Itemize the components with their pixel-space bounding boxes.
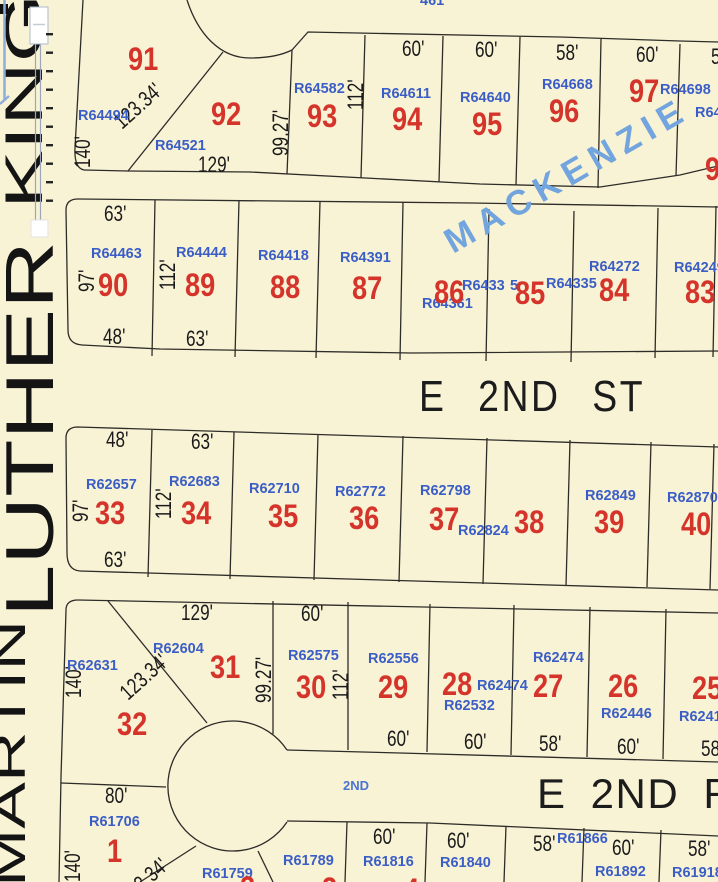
svg-text:R64521: R64521 bbox=[155, 138, 206, 154]
svg-text:R64249: R64249 bbox=[674, 260, 718, 276]
svg-text:92: 92 bbox=[211, 97, 241, 133]
svg-text:129': 129' bbox=[198, 153, 230, 178]
svg-text:87: 87 bbox=[352, 271, 382, 307]
svg-text:R62657: R62657 bbox=[86, 477, 137, 493]
svg-text:140': 140' bbox=[71, 136, 96, 168]
svg-text:63': 63' bbox=[186, 327, 208, 352]
svg-text:86: 86 bbox=[434, 275, 464, 311]
svg-text:30: 30 bbox=[296, 670, 326, 706]
svg-text:R61816: R61816 bbox=[363, 854, 414, 870]
svg-text:112': 112' bbox=[152, 488, 177, 519]
svg-text:R6433: R6433 bbox=[462, 278, 505, 294]
svg-text:LUTHER: LUTHER bbox=[0, 241, 68, 617]
svg-text:R62824: R62824 bbox=[458, 523, 509, 539]
svg-text:R64418: R64418 bbox=[258, 248, 309, 264]
svg-text:90: 90 bbox=[98, 268, 128, 304]
svg-text:R64335: R64335 bbox=[546, 276, 597, 292]
svg-text:1: 1 bbox=[107, 834, 122, 870]
svg-text:33: 33 bbox=[95, 496, 125, 532]
svg-text:29: 29 bbox=[378, 670, 408, 706]
svg-text:R62772: R62772 bbox=[335, 484, 386, 500]
svg-text:58': 58' bbox=[701, 737, 718, 762]
svg-text:R647: R647 bbox=[695, 105, 718, 121]
svg-text:60': 60' bbox=[447, 829, 469, 854]
svg-text:2: 2 bbox=[240, 871, 255, 882]
svg-text:60': 60' bbox=[464, 730, 486, 755]
svg-text:98: 98 bbox=[705, 152, 718, 188]
svg-text:26: 26 bbox=[608, 669, 638, 705]
svg-text:129': 129' bbox=[181, 601, 213, 626]
svg-text:97': 97' bbox=[69, 500, 94, 522]
svg-text:140': 140' bbox=[61, 850, 86, 882]
svg-text:37: 37 bbox=[429, 502, 459, 538]
svg-text:R64444: R64444 bbox=[176, 245, 227, 261]
svg-text:93: 93 bbox=[307, 99, 337, 135]
svg-text:R62683: R62683 bbox=[169, 474, 220, 490]
svg-text:R62798: R62798 bbox=[420, 483, 471, 499]
svg-text:63': 63' bbox=[191, 430, 213, 455]
svg-text:R62474: R62474 bbox=[533, 650, 584, 666]
svg-text:R64463: R64463 bbox=[91, 246, 142, 262]
svg-text:27: 27 bbox=[533, 669, 563, 705]
svg-text:63': 63' bbox=[104, 202, 126, 227]
svg-text:R64668: R64668 bbox=[542, 77, 593, 93]
svg-text:461': 461' bbox=[420, 0, 448, 9]
svg-text:99.27': 99.27' bbox=[252, 657, 277, 703]
svg-text:34: 34 bbox=[181, 496, 212, 532]
svg-text:89: 89 bbox=[185, 268, 215, 304]
svg-text:94: 94 bbox=[392, 102, 423, 138]
svg-text:E 2ND ST: E 2ND ST bbox=[419, 371, 645, 421]
svg-text:60': 60' bbox=[301, 602, 323, 627]
svg-text:99.27': 99.27' bbox=[269, 110, 294, 156]
svg-text:E 2ND R: E 2ND R bbox=[537, 770, 718, 817]
svg-text:84: 84 bbox=[599, 273, 630, 309]
svg-text:R62631: R62631 bbox=[67, 658, 118, 674]
svg-text:97': 97' bbox=[75, 270, 100, 292]
svg-text:R64494: R64494 bbox=[78, 108, 129, 124]
svg-text:48': 48' bbox=[103, 325, 125, 350]
svg-text:83: 83 bbox=[685, 275, 715, 311]
svg-text:63': 63' bbox=[104, 548, 126, 573]
svg-text:R64391: R64391 bbox=[340, 250, 391, 266]
svg-text:R64640: R64640 bbox=[460, 90, 511, 106]
svg-text:60': 60' bbox=[636, 43, 658, 68]
svg-text:80': 80' bbox=[105, 784, 127, 809]
svg-text:95: 95 bbox=[472, 107, 502, 143]
svg-text:60': 60' bbox=[617, 735, 639, 760]
svg-text:R64582: R64582 bbox=[294, 81, 345, 97]
svg-text:48': 48' bbox=[106, 428, 128, 453]
svg-text:R61892: R61892 bbox=[595, 864, 646, 880]
svg-text:R62849: R62849 bbox=[585, 488, 636, 504]
svg-text:112': 112' bbox=[344, 79, 369, 110]
svg-text:25: 25 bbox=[692, 671, 718, 707]
svg-text:MARTIN: MARTIN bbox=[0, 620, 35, 882]
svg-text:4: 4 bbox=[404, 873, 420, 882]
svg-text:112': 112' bbox=[329, 669, 354, 700]
svg-text:60': 60' bbox=[373, 825, 395, 850]
svg-text:58': 58' bbox=[688, 837, 710, 862]
svg-text:R64611: R64611 bbox=[381, 86, 431, 102]
svg-text:58': 58' bbox=[533, 832, 555, 857]
svg-text:R62474: R62474 bbox=[477, 678, 528, 694]
svg-text:28: 28 bbox=[442, 667, 472, 703]
svg-text:R62556: R62556 bbox=[368, 651, 419, 667]
svg-text:58': 58' bbox=[539, 732, 561, 757]
svg-text:38: 38 bbox=[514, 505, 544, 541]
svg-text:R61706: R61706 bbox=[89, 814, 140, 830]
svg-text:R62604: R62604 bbox=[153, 641, 204, 657]
svg-text:40: 40 bbox=[681, 507, 711, 543]
svg-text:R62870: R62870 bbox=[667, 490, 718, 506]
svg-text:35: 35 bbox=[268, 499, 298, 535]
svg-text:39: 39 bbox=[594, 505, 624, 541]
svg-text:60': 60' bbox=[387, 727, 409, 752]
svg-text:2ND: 2ND bbox=[343, 778, 369, 793]
svg-text:88: 88 bbox=[270, 270, 300, 306]
svg-text:96: 96 bbox=[549, 94, 579, 130]
svg-text:R62575: R62575 bbox=[288, 648, 339, 664]
svg-text:58': 58' bbox=[556, 41, 578, 66]
svg-text:32: 32 bbox=[117, 707, 147, 743]
svg-text:R61789: R61789 bbox=[283, 853, 334, 869]
svg-text:R62710: R62710 bbox=[249, 481, 300, 497]
svg-text:91: 91 bbox=[128, 42, 158, 78]
svg-text:R61840: R61840 bbox=[440, 855, 491, 871]
svg-text:R61866: R61866 bbox=[557, 831, 608, 847]
svg-text:31: 31 bbox=[210, 650, 240, 686]
svg-text:112': 112' bbox=[156, 259, 181, 290]
svg-text:60': 60' bbox=[612, 836, 634, 861]
svg-text:58': 58' bbox=[711, 45, 718, 70]
svg-text:36: 36 bbox=[349, 501, 379, 537]
svg-text:R62418: R62418 bbox=[679, 709, 718, 725]
svg-text:3: 3 bbox=[322, 872, 337, 882]
svg-text:85: 85 bbox=[515, 276, 545, 312]
svg-text:R61918: R61918 bbox=[672, 865, 718, 881]
svg-text:60': 60' bbox=[475, 38, 497, 63]
svg-text:R62446: R62446 bbox=[601, 706, 652, 722]
svg-text:60': 60' bbox=[402, 37, 424, 62]
